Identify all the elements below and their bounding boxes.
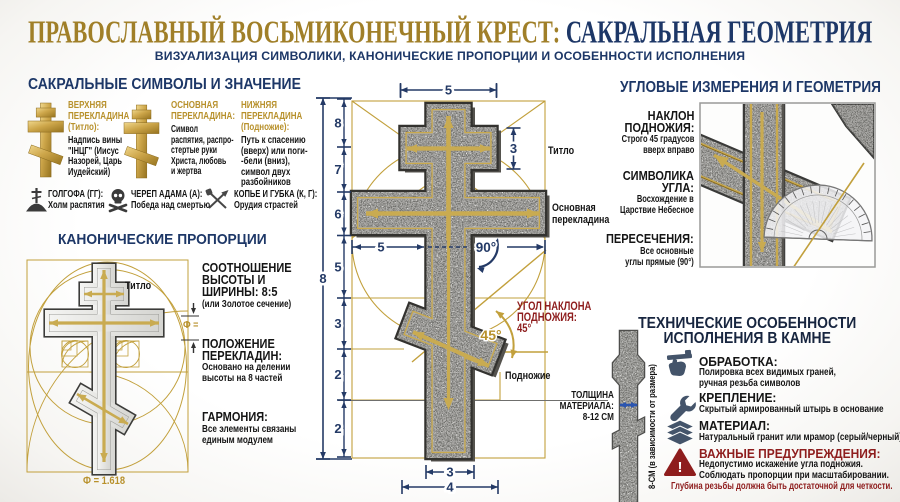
svg-text:5: 5 [445,83,452,98]
svg-text:2: 2 [334,421,341,436]
svg-text:5: 5 [334,259,341,274]
svg-text:4: 4 [446,480,454,495]
svg-text:3: 3 [334,316,341,331]
svg-text:5: 5 [377,240,384,255]
svg-text:3: 3 [510,141,517,156]
svg-text:2: 2 [334,367,341,382]
svg-text:8: 8 [334,116,341,131]
svg-text:8: 8 [319,271,326,286]
svg-text:!: ! [678,459,683,476]
svg-text:45°: 45° [480,327,501,343]
svg-text:90°: 90° [476,240,496,255]
svg-text:3: 3 [446,465,453,480]
svg-text:7: 7 [334,162,341,177]
